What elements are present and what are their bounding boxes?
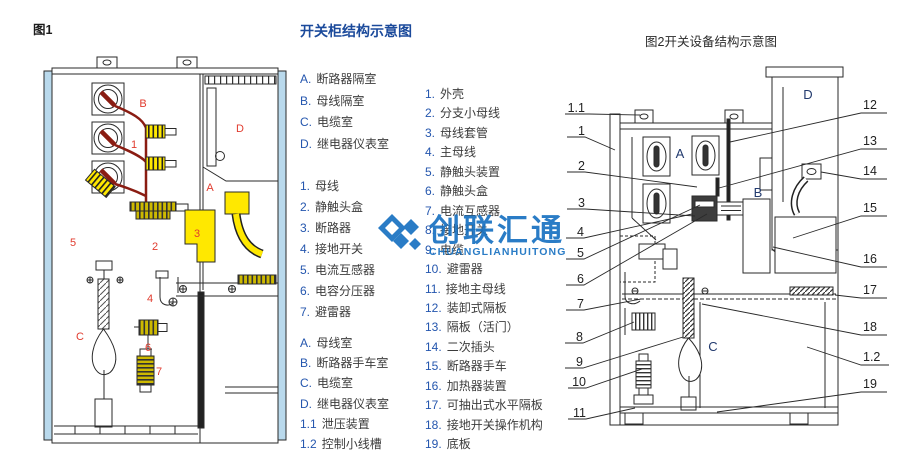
legend-compartments-2: A.母线室 B.断路器手车室 C.电缆室 D.继电器仪表室 1.1泄压装置 1.… xyxy=(300,333,389,454)
legend-parts-1: 1.母线 2.静触头盒 3.断路器 4.接地开关 5.电流互感器 6.电容分压器… xyxy=(300,176,375,323)
fig2-callout-3: 3 xyxy=(578,196,585,210)
fig1-mark-C: C xyxy=(76,331,84,343)
fig2-diagram: 1.1 1 2 3 4 5 6 7 8 9 10 11 12 13 14 15 … xyxy=(555,52,900,442)
fig2-callout-12: 12 xyxy=(863,98,877,112)
legend-item: 3.母线套管 xyxy=(425,124,543,143)
fig2-callout-1.2: 1.2 xyxy=(863,350,880,364)
legend-item: 5.静触头装置 xyxy=(425,163,543,182)
fig1-mark-4: 4 xyxy=(147,293,153,305)
fig1-mark-2: 2 xyxy=(152,241,158,253)
legend-item: 1.2控制小线槽 xyxy=(300,434,389,454)
legend-item: 15.断路器手车 xyxy=(425,357,543,376)
fig1-diagram: B D 1 A 3 5 2 4 C 6 7 xyxy=(40,55,290,450)
legend-item: 5.电流互感器 xyxy=(300,260,375,281)
fig2-callout-17: 17 xyxy=(863,283,877,297)
arrester-icon xyxy=(634,354,653,404)
fig1-mark-B: B xyxy=(139,98,146,110)
fig1-mark-D: D xyxy=(236,123,244,135)
fig2-callout-15: 15 xyxy=(863,201,877,215)
fig2-callout-13: 13 xyxy=(863,134,877,148)
legend-item: D.继电器仪表室 xyxy=(300,134,389,156)
fig1-mark-7: 7 xyxy=(156,366,162,378)
fig2-callout-5: 5 xyxy=(577,246,584,260)
fig2-callout-16: 16 xyxy=(863,252,877,266)
watermark-latin: CHUANGLIANHUITONG xyxy=(429,246,567,258)
legend-item: B.母线隔室 xyxy=(300,91,389,113)
legend-compartments-1: A.断路器隔室 B.母线隔室 C.电缆室 D.继电器仪表室 xyxy=(300,69,389,155)
fig2-caption: 图2开关设备结构示意图 xyxy=(645,31,777,50)
legend-item: 12.装卸式隔板 xyxy=(425,299,543,318)
fig2-mark-B: B xyxy=(754,185,763,200)
fig2-callout-11: 11 xyxy=(573,406,586,420)
fig1-caption: 图1 xyxy=(33,19,52,38)
legend-item: 3.断路器 xyxy=(300,218,375,239)
fig2-mark-C: C xyxy=(708,339,717,354)
fig2-callout-4: 4 xyxy=(577,225,584,239)
fig2-callout-18: 18 xyxy=(863,320,877,334)
legend-parts-2: 1.外壳 2.分支小母线 3.母线套管 4.主母线 5.静触头装置 6.静触头盒… xyxy=(425,85,543,455)
legend-title: 开关柜结构示意图 xyxy=(300,21,412,41)
legend-item: 4.主母线 xyxy=(425,143,543,162)
fig2-callout-9: 9 xyxy=(576,355,583,369)
legend-item: B.断路器手车室 xyxy=(300,353,389,373)
fig2-callout-1: 1 xyxy=(578,124,585,138)
fig2-callout-2: 2 xyxy=(578,159,585,173)
legend-item: A.母线室 xyxy=(300,333,389,353)
legend-item: 18.接地开关操作机构 xyxy=(425,416,543,435)
legend-item: 6.静触头盒 xyxy=(425,182,543,201)
fig1-mark-A: A xyxy=(206,182,214,194)
legend-item: 2.静触头盒 xyxy=(300,197,375,218)
lifting-lug-icon xyxy=(97,57,197,68)
fig2-callout-8: 8 xyxy=(576,330,583,344)
fig1-mark-1: 1 xyxy=(131,139,137,151)
legend-item: 2.分支小母线 xyxy=(425,104,543,123)
legend-item: 10.避雷器 xyxy=(425,260,543,279)
legend-item: 17.可抽出式水平隔板 xyxy=(425,396,543,415)
legend-item: 6.电容分压器 xyxy=(300,281,375,302)
fig1-mark-5: 5 xyxy=(70,237,76,249)
fig2-callout-10: 10 xyxy=(572,375,586,389)
legend-item: 14.二次插头 xyxy=(425,338,543,357)
fig1-mark-3: 3 xyxy=(194,228,200,240)
fig1-mark-6: 6 xyxy=(145,342,151,354)
legend-item: 19.底板 xyxy=(425,435,543,454)
fig2-callout-19: 19 xyxy=(863,377,877,391)
legend-item: 1.母线 xyxy=(300,176,375,197)
legend-item: C.电缆室 xyxy=(300,112,389,134)
legend-item: 16.加热器装置 xyxy=(425,377,543,396)
fig2-callout-1.1: 1.1 xyxy=(568,101,585,115)
fig2-callout-14: 14 xyxy=(863,164,877,178)
left-panel-strip xyxy=(44,71,52,440)
watermark-logo-icon xyxy=(377,213,423,259)
fig2-mark-D: D xyxy=(803,87,812,102)
legend-item: 7.避雷器 xyxy=(300,302,375,323)
fig2-callout-6: 6 xyxy=(577,272,584,286)
watermark-cjk: 创联汇通 xyxy=(429,213,567,249)
legend-item: 13.隔板（活门） xyxy=(425,318,543,337)
legend-item: 4.接地开关 xyxy=(300,239,375,260)
legend-item: 11.接地主母线 xyxy=(425,280,543,299)
legend-item: 1.1泄压装置 xyxy=(300,414,389,434)
fig2-mark-A: A xyxy=(676,146,685,161)
legend-item: A.断路器隔室 xyxy=(300,69,389,91)
legend-item: D.继电器仪表室 xyxy=(300,394,389,414)
fig2-callout-7: 7 xyxy=(577,297,584,311)
watermark: 创联汇通 CHUANGLIANHUITONG xyxy=(377,213,567,259)
center-divider xyxy=(198,292,204,428)
page: 图1 xyxy=(0,0,900,474)
right-panel-strip xyxy=(278,71,286,440)
watermark-text: 创联汇通 CHUANGLIANHUITONG xyxy=(429,213,567,258)
legend-item: C.电缆室 xyxy=(300,373,389,393)
legend-item: 1.外壳 xyxy=(425,85,543,104)
